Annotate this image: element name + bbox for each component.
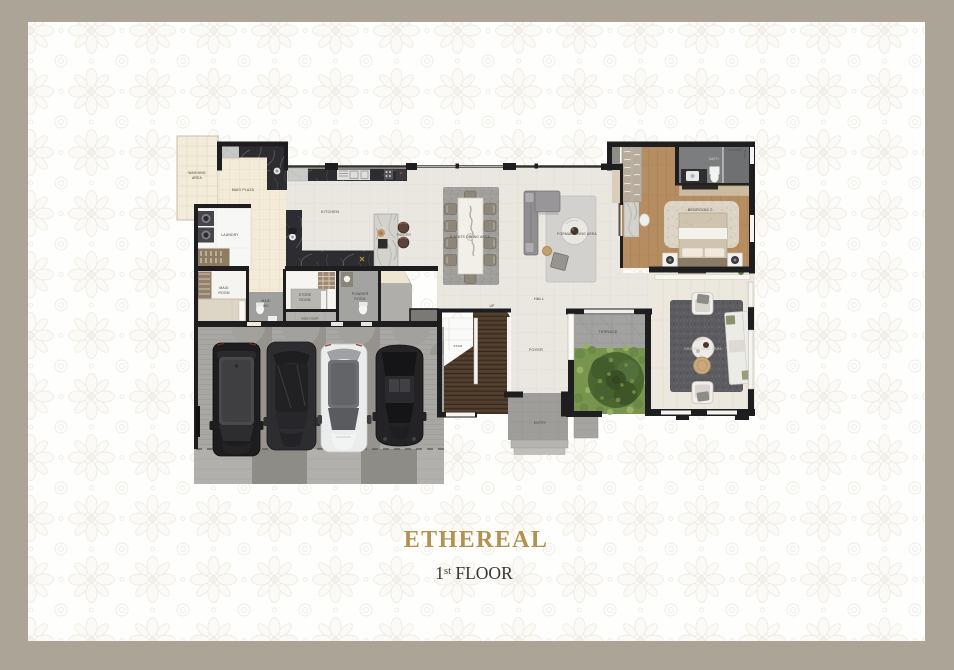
svg-text:WC: WC <box>263 304 269 308</box>
svg-text:8 SEATS DINING AREA: 8 SEATS DINING AREA <box>450 235 491 239</box>
svg-text:ROOM: ROOM <box>299 298 310 302</box>
svg-text:UP: UP <box>489 304 495 308</box>
svg-text:FORMAL LIVING AREA: FORMAL LIVING AREA <box>557 232 597 236</box>
svg-text:SIDE DOOR: SIDE DOOR <box>301 317 319 321</box>
svg-text:MAID: MAID <box>219 286 229 290</box>
svg-text:POWDER: POWDER <box>352 292 369 296</box>
svg-text:MAID: MAID <box>261 299 271 303</box>
svg-text:MAID PLAZA: MAID PLAZA <box>232 188 255 192</box>
svg-text:STORE: STORE <box>299 293 312 297</box>
svg-text:WASHING: WASHING <box>188 171 206 175</box>
svg-text:BATH: BATH <box>709 157 719 161</box>
svg-text:STAIR: STAIR <box>453 344 462 348</box>
svg-text:TERRACE: TERRACE <box>598 330 618 334</box>
svg-text:ETHEREAL: ETHEREAL <box>404 527 549 553</box>
svg-text:PANTRY: PANTRY <box>397 233 412 237</box>
svg-text:AREA: AREA <box>192 176 203 180</box>
svg-text:ENTRY: ENTRY <box>534 421 547 425</box>
svg-text:FOYER: FOYER <box>529 348 543 352</box>
svg-text:GRAND LIVING AREA: GRAND LIVING AREA <box>684 347 722 351</box>
svg-text:LAUNDRY: LAUNDRY <box>221 233 239 237</box>
svg-text:ROOM: ROOM <box>218 291 229 295</box>
svg-text:KITCHEN: KITCHEN <box>321 210 339 214</box>
svg-text:HALL: HALL <box>534 297 544 301</box>
svg-text:ROOM: ROOM <box>354 297 365 301</box>
svg-text:BEDROOM 2: BEDROOM 2 <box>688 208 713 212</box>
